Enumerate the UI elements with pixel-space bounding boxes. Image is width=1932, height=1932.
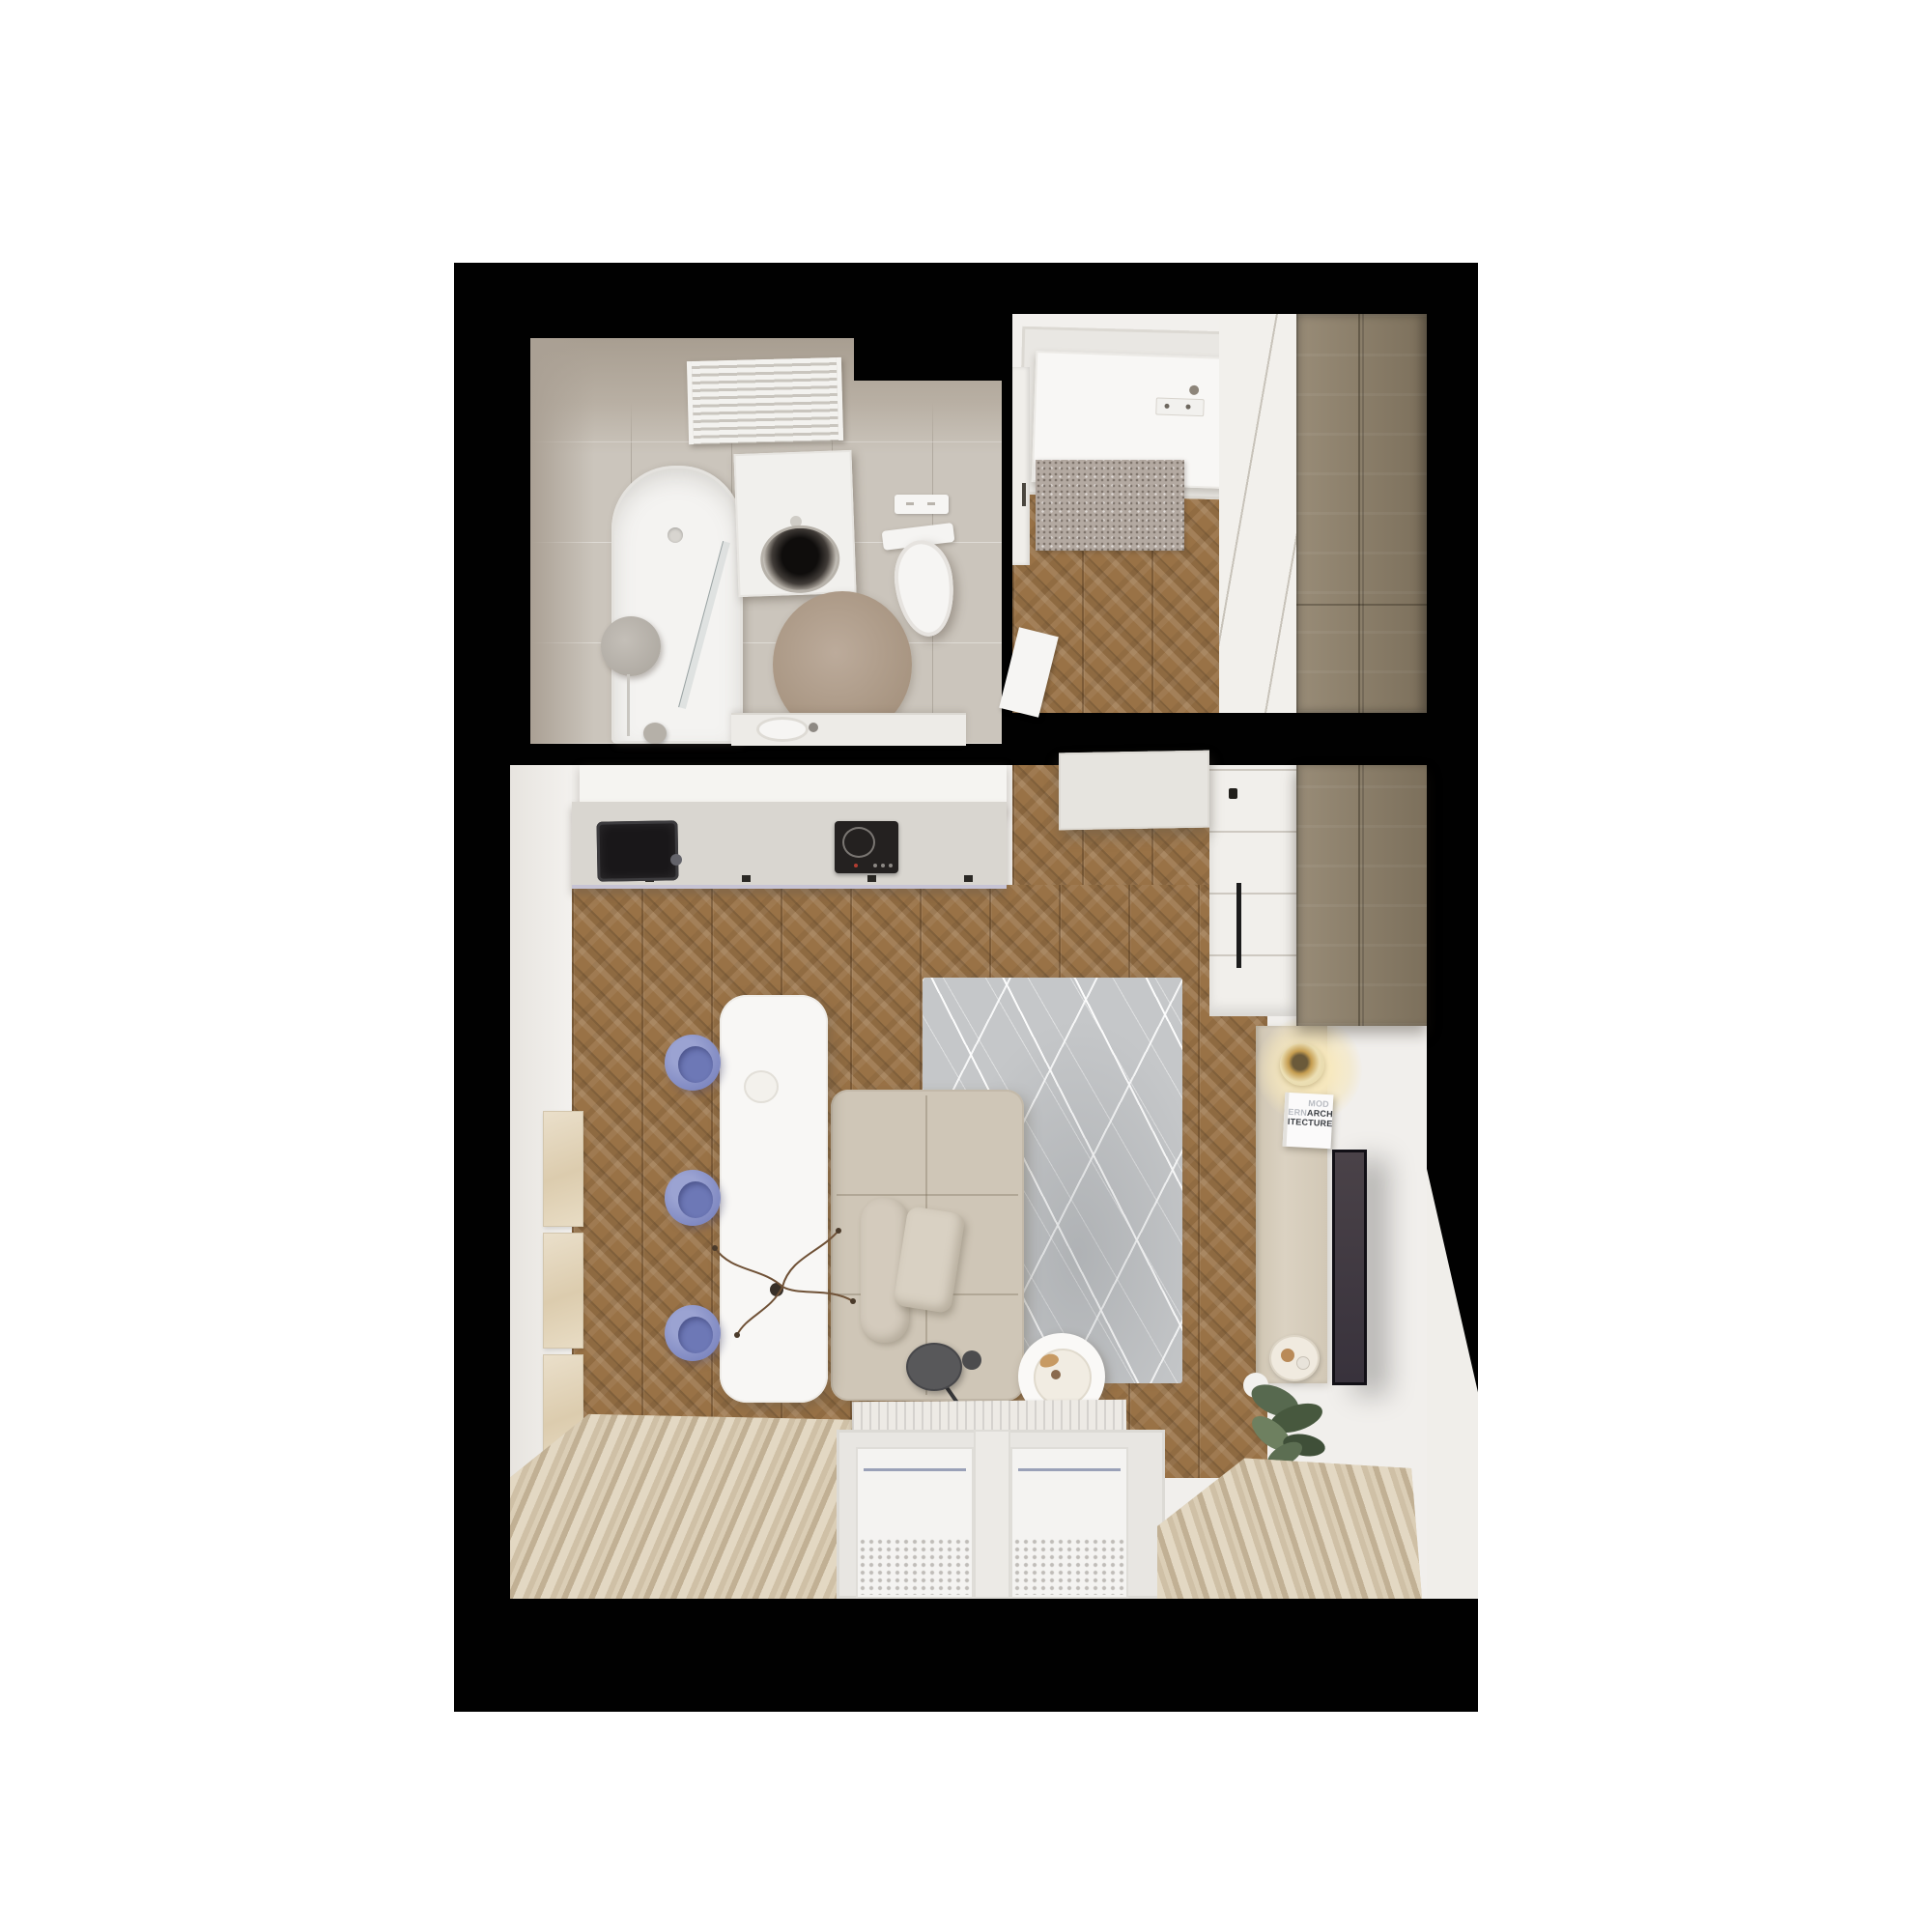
round-mirror bbox=[601, 616, 661, 676]
flush-button bbox=[906, 502, 914, 505]
doormat bbox=[1036, 460, 1184, 551]
tall-oak-cabinet bbox=[1296, 765, 1427, 1026]
branch-stems bbox=[715, 1231, 853, 1335]
bathtub-drain bbox=[668, 527, 683, 543]
lock-dot bbox=[1164, 404, 1169, 409]
cooktop-dot bbox=[889, 864, 893, 867]
bud bbox=[712, 1245, 718, 1251]
stool-seat bbox=[678, 1181, 713, 1218]
radiator bbox=[852, 1400, 1126, 1433]
branch-decor bbox=[694, 1219, 877, 1364]
window-glazing-bar bbox=[864, 1468, 966, 1471]
kitchen-sink bbox=[596, 820, 678, 881]
room-entry-hall bbox=[1012, 314, 1427, 713]
bud bbox=[836, 1228, 841, 1234]
bar-stool bbox=[665, 1170, 721, 1226]
left-curtain bbox=[510, 1412, 852, 1599]
cabinet-long-handle bbox=[1236, 883, 1241, 968]
washbasin bbox=[756, 717, 809, 742]
window-pane bbox=[1010, 1447, 1128, 1599]
balcony-railing-view bbox=[1014, 1539, 1124, 1595]
cooktop-dot bbox=[873, 864, 877, 867]
book-text-dark: ITECTURE bbox=[1288, 1117, 1333, 1128]
bud bbox=[850, 1298, 856, 1304]
book-line: ITECTURE bbox=[1288, 1117, 1328, 1128]
bathtub bbox=[611, 466, 743, 744]
bathroom-wall-left bbox=[530, 338, 594, 744]
bar-stool bbox=[665, 1305, 721, 1361]
built-in-white-cabinet bbox=[1209, 765, 1296, 1016]
architecture-book: MOD ERNARCH ITECTURE bbox=[1283, 1093, 1334, 1150]
cup bbox=[1281, 1349, 1294, 1362]
branch bbox=[715, 1248, 782, 1287]
towel-radiator bbox=[687, 357, 843, 444]
balcony-window bbox=[837, 1430, 1165, 1599]
wardrobe-seam bbox=[1296, 604, 1427, 606]
screenshot-canvas: MOD ERNARCH ITECTURE bbox=[0, 0, 1932, 1932]
lock-plate bbox=[1155, 397, 1205, 416]
flush-plate bbox=[895, 495, 949, 514]
window-glazing-bar bbox=[1018, 1468, 1121, 1471]
washer-cabinet bbox=[733, 450, 856, 597]
flush-button bbox=[927, 502, 935, 505]
stool-seat bbox=[678, 1046, 713, 1083]
wardrobe-seam bbox=[1358, 314, 1360, 713]
cabinet-hinge bbox=[742, 875, 751, 882]
mirror-stand bbox=[627, 674, 630, 736]
cabinet-hinge bbox=[964, 875, 973, 882]
cooktop-ring bbox=[842, 827, 875, 858]
room-living-kitchen: MOD ERNARCH ITECTURE bbox=[510, 765, 1427, 1599]
room-bathroom bbox=[530, 338, 1002, 744]
balcony-railing-view bbox=[860, 1539, 970, 1595]
toilet bbox=[882, 523, 968, 652]
lock-dot bbox=[1185, 405, 1190, 410]
toilet-bowl bbox=[890, 537, 959, 640]
decor-plate bbox=[744, 1070, 779, 1103]
table-lamp bbox=[1280, 1043, 1324, 1086]
bud bbox=[734, 1332, 740, 1338]
floor-lamp-joint bbox=[962, 1350, 981, 1370]
basin-faucet bbox=[809, 723, 818, 732]
shoe-cabinet bbox=[1012, 367, 1030, 565]
branch bbox=[737, 1287, 782, 1335]
stool-seat bbox=[678, 1317, 713, 1353]
bathroom-frame-notch bbox=[854, 338, 1002, 381]
cooktop-indicator bbox=[854, 864, 858, 867]
cabinet-hook-handle bbox=[1229, 788, 1237, 799]
induction-cooktop bbox=[835, 821, 898, 873]
cooktop-dot bbox=[881, 864, 885, 867]
coffee-cup bbox=[1051, 1370, 1061, 1379]
floor-lamp-head bbox=[906, 1343, 962, 1391]
branch bbox=[782, 1231, 838, 1287]
floating-cabinet bbox=[1059, 751, 1209, 831]
window-mullion bbox=[974, 1430, 1010, 1599]
bar-stool bbox=[665, 1035, 721, 1091]
branch bbox=[782, 1287, 853, 1301]
plant-leaves bbox=[1246, 1378, 1327, 1473]
hall-wardrobe-oak bbox=[1296, 314, 1427, 713]
cabinet-hinge bbox=[867, 875, 876, 882]
kitchen-faucet bbox=[670, 854, 682, 866]
cabinet-handle bbox=[1022, 483, 1026, 506]
wall-art-panel bbox=[543, 1233, 583, 1349]
peephole-icon bbox=[1189, 385, 1199, 395]
sofa-seam bbox=[837, 1194, 1018, 1196]
washing-machine-drum bbox=[759, 524, 840, 594]
wall-art-panel bbox=[543, 1111, 583, 1227]
cabinet-seam bbox=[1358, 765, 1360, 1026]
wall-mounted-tv bbox=[1332, 1150, 1367, 1385]
window-pane bbox=[856, 1447, 974, 1599]
bath-stool bbox=[643, 723, 667, 744]
